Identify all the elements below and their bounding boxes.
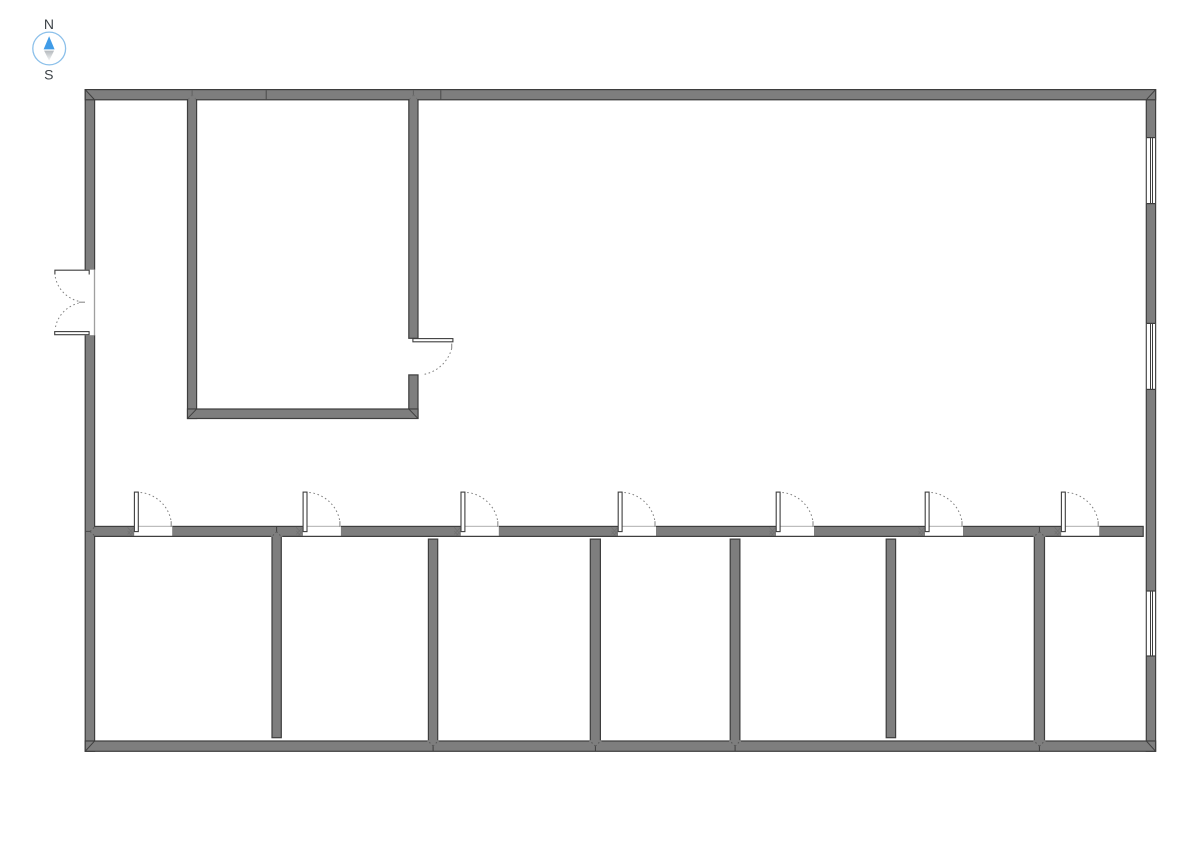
svg-text:N: N [44,16,54,32]
svg-text:S: S [44,67,53,83]
